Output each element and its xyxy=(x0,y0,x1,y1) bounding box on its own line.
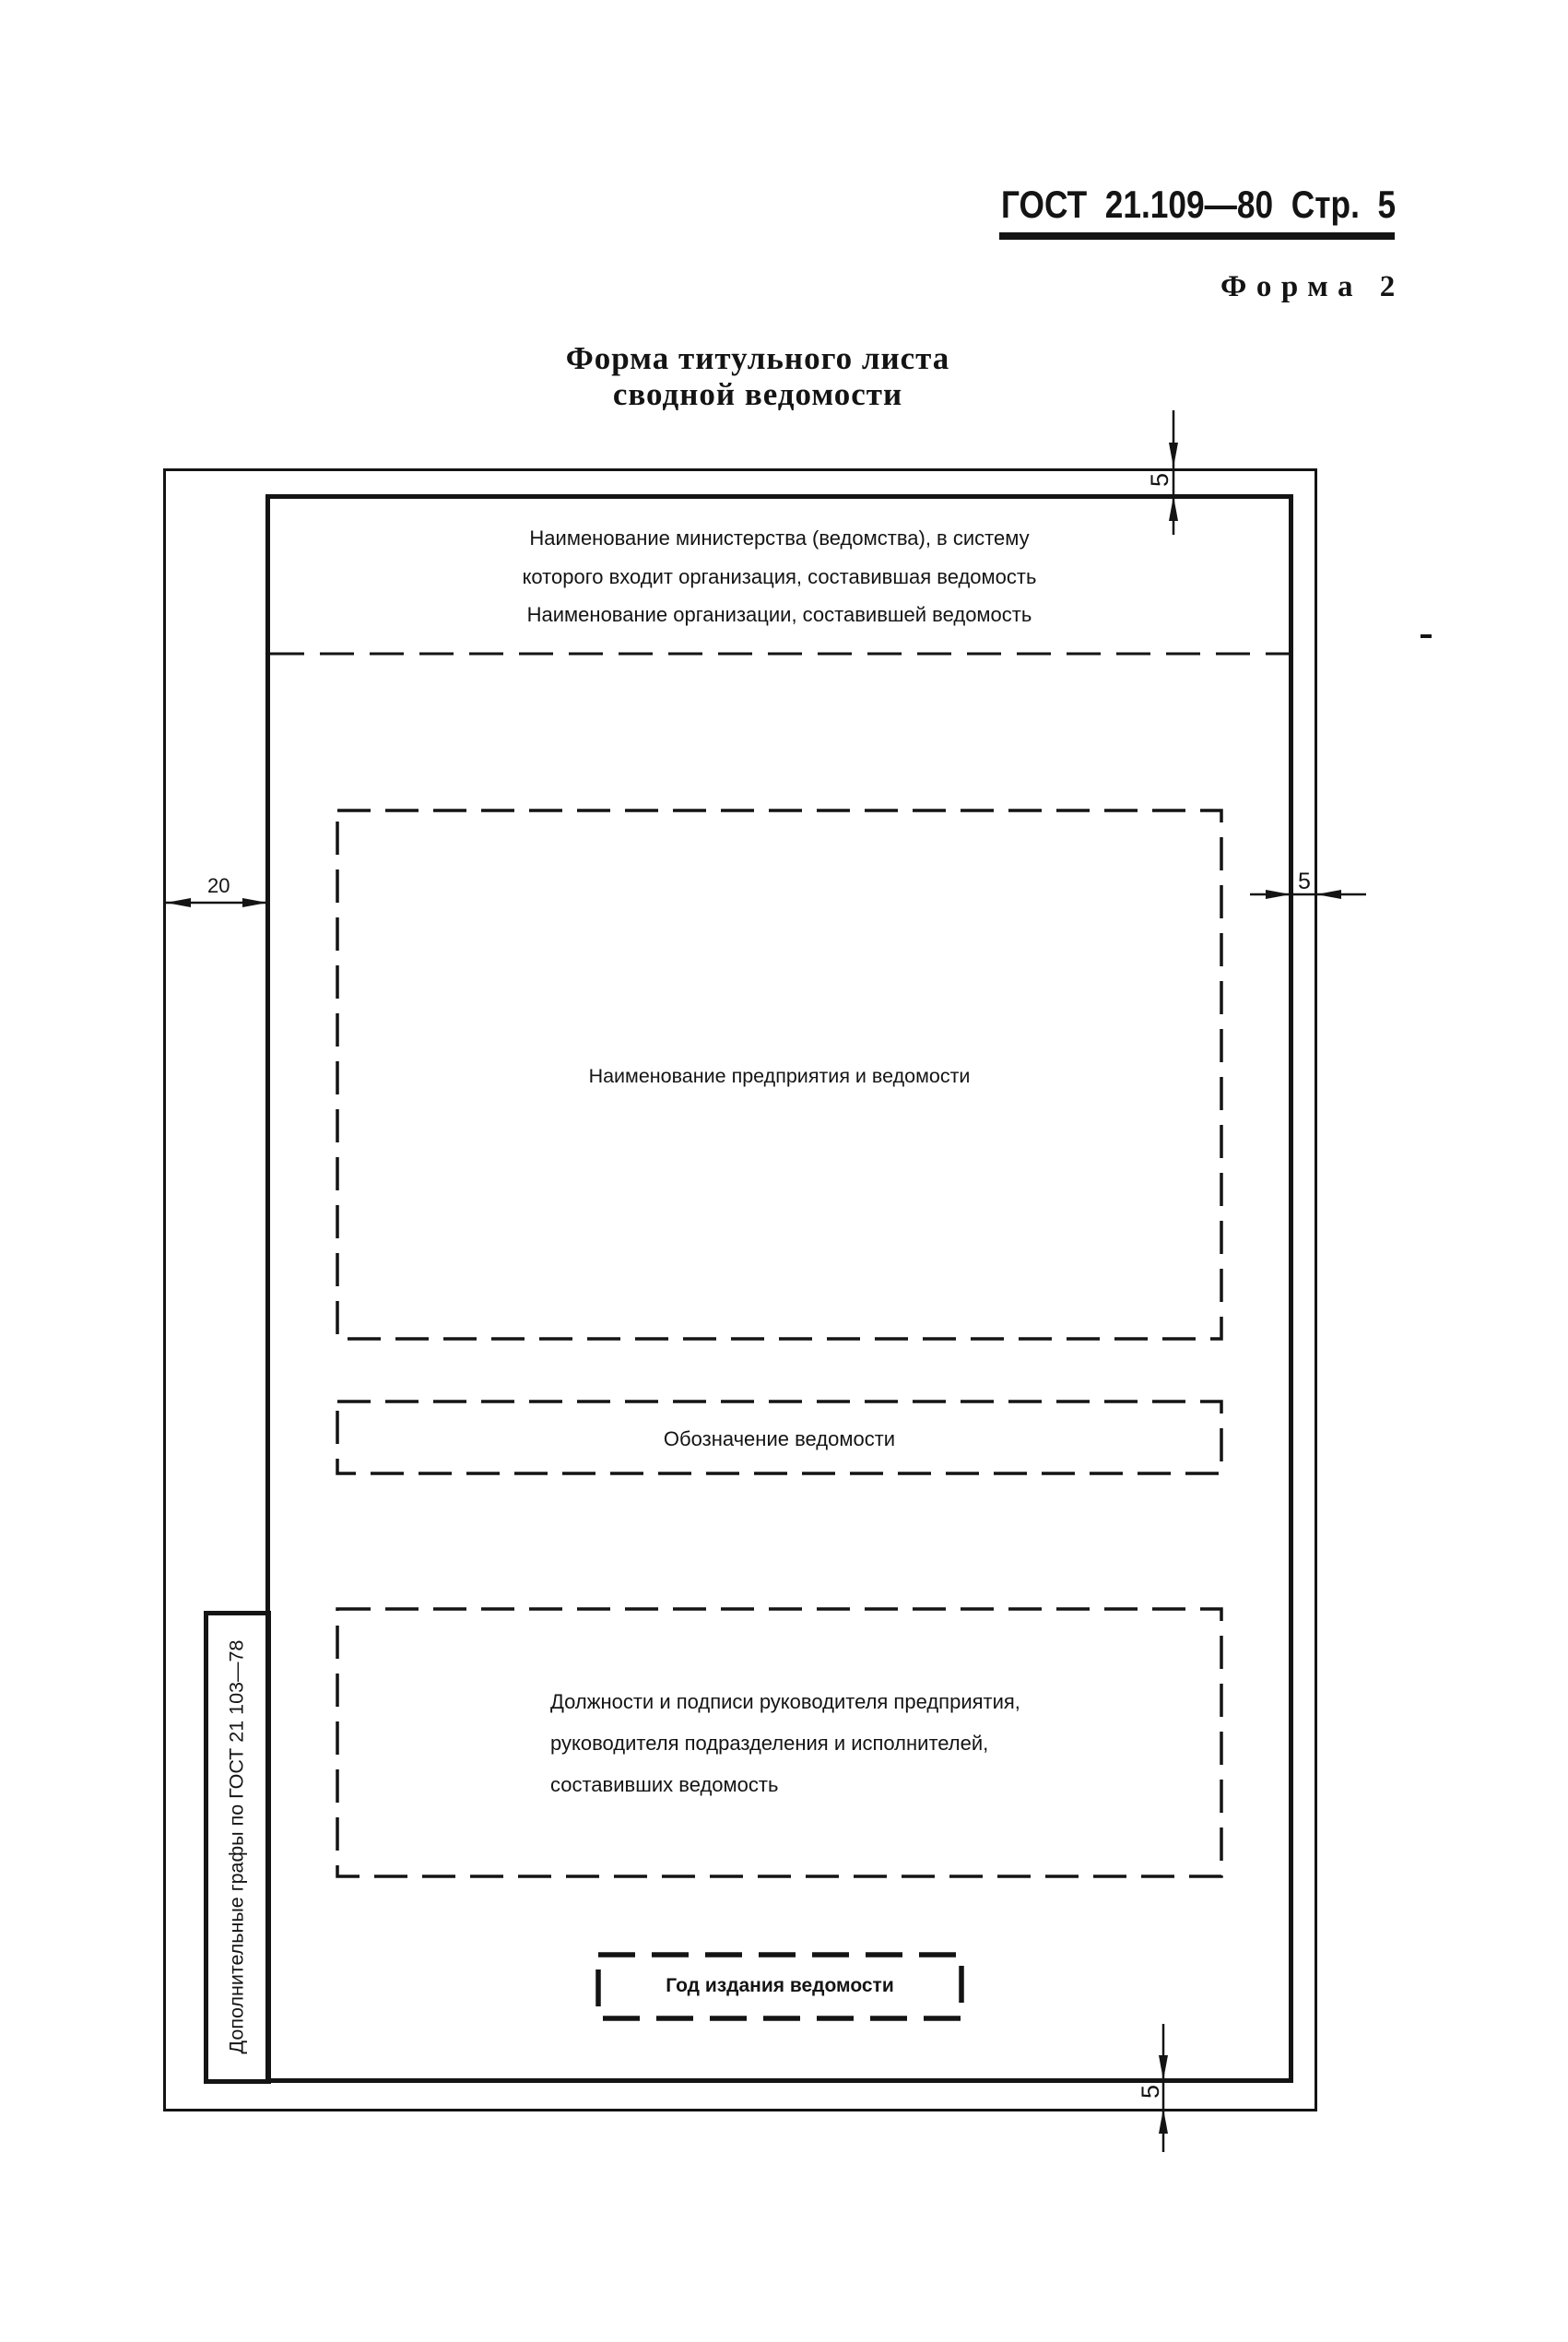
svg-text:5: 5 xyxy=(1137,2085,1164,2099)
